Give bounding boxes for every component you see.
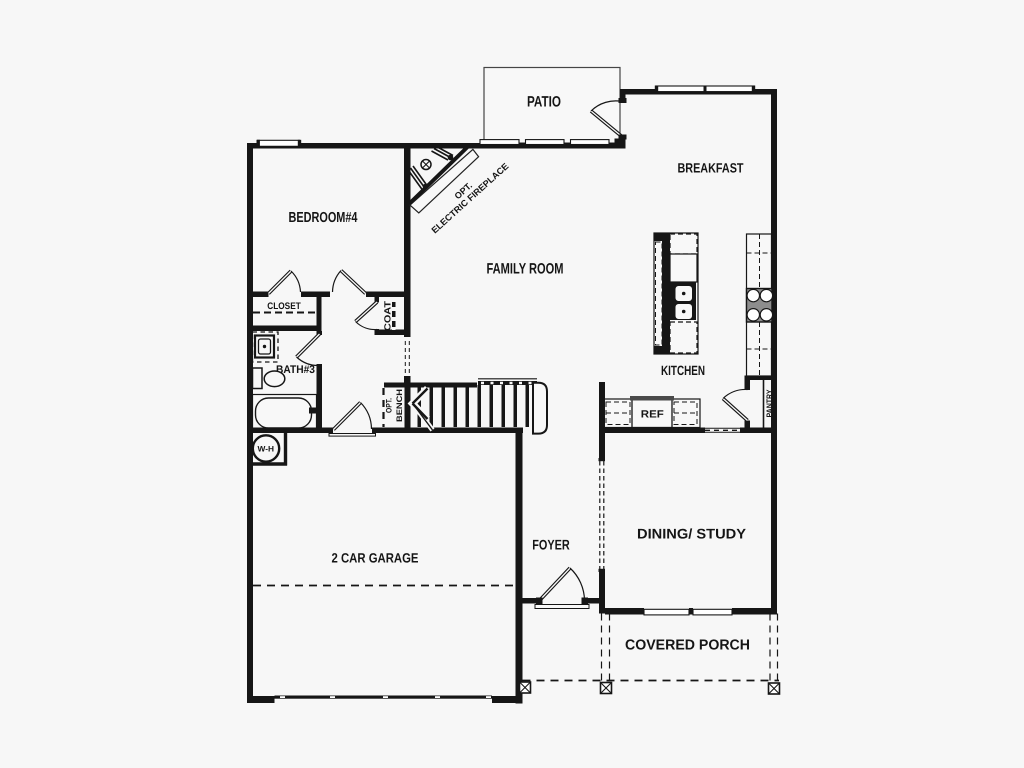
svg-text:REF: REF — [641, 409, 665, 421]
svg-text:FAMILY ROOM: FAMILY ROOM — [487, 261, 564, 278]
svg-text:FOYER: FOYER — [532, 537, 570, 553]
svg-text:W-H: W-H — [258, 445, 275, 454]
svg-text:BENCH: BENCH — [395, 389, 404, 422]
svg-text:COVERED PORCH: COVERED PORCH — [625, 638, 750, 654]
svg-text:2 CAR GARAGE: 2 CAR GARAGE — [332, 551, 419, 566]
svg-text:BEDROOM#4: BEDROOM#4 — [289, 210, 358, 226]
svg-text:PATIO: PATIO — [527, 94, 561, 111]
svg-text:COAT: COAT — [383, 300, 393, 331]
svg-text:PANTRY: PANTRY — [765, 389, 774, 418]
svg-text:OPT.: OPT. — [385, 398, 394, 413]
svg-text:CLOSET: CLOSET — [267, 301, 301, 312]
svg-text:KITCHEN: KITCHEN — [661, 363, 705, 378]
svg-text:BREAKFAST: BREAKFAST — [678, 161, 745, 176]
svg-text:DINING/ STUDY: DINING/ STUDY — [637, 526, 747, 542]
